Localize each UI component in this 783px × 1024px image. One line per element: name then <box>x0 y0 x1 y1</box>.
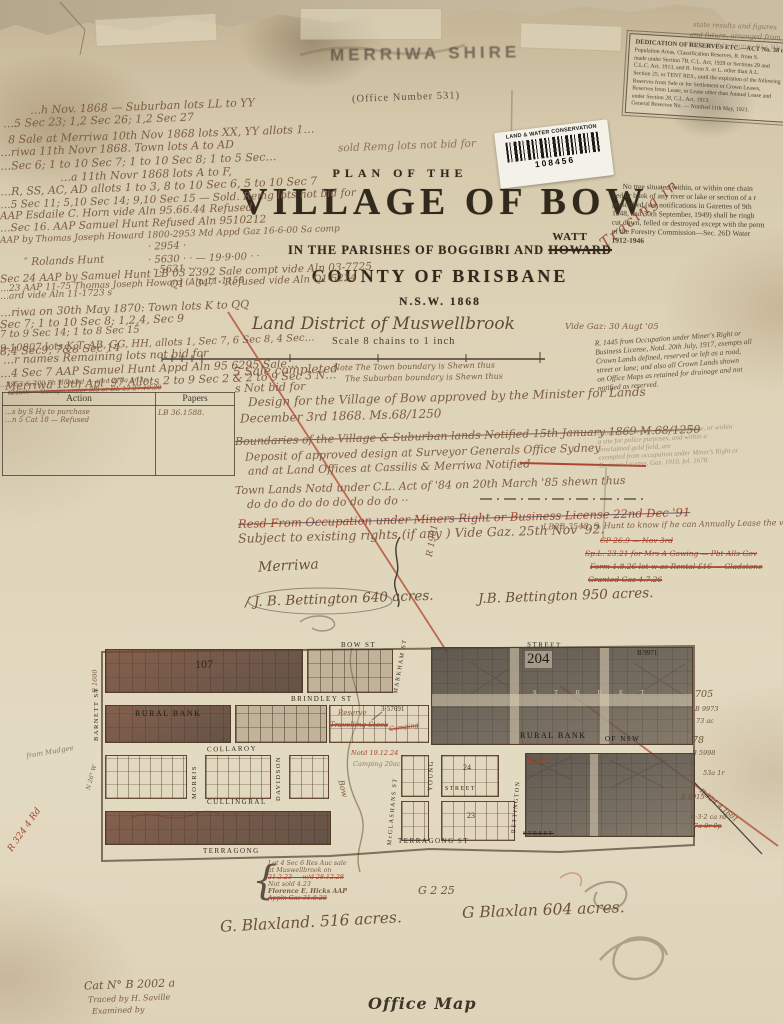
not-bid-note: s Not bid for <box>235 380 306 395</box>
register-note: · 2954 · <box>148 240 187 252</box>
g225-note: G 2 25 <box>418 884 455 897</box>
bradley-signature: W. J. Bradley <box>125 727 176 736</box>
margin-area-632: 6·3·2 ca rd <box>691 813 726 821</box>
street-label-young: YOUNG <box>427 760 435 791</box>
margin-portion-78: 78 <box>692 735 704 746</box>
camping-res-note: Camping 20ac <box>353 760 400 768</box>
hicks-note-line: Florence E. Hicks AAP <box>268 888 347 895</box>
street-label-mcglashans: McGLASHANS ST <box>387 777 399 845</box>
lot-number-24: 24 <box>463 763 471 772</box>
rural-bank-stamp: RURAL BANK <box>135 709 201 718</box>
dedication-notice-box: DEDICATION OF RESERVES ETC.—ACT No. 38 o… <box>625 33 783 123</box>
notd-date-note: Notd 19.12.24 <box>351 749 398 757</box>
table-cell-papers: LB 36.1588. <box>156 406 235 476</box>
r1600-road-label: R 1600 <box>91 669 99 693</box>
parishes-prefix: IN THE PARISHES OF BOGGIBRI AND <box>288 243 544 257</box>
section-number-204: 204 <box>525 651 552 668</box>
portion-b9971: B 9971 <box>637 649 657 657</box>
struck-note-form: Form 1.8.26 lot w as Rental £16 — Gladst… <box>590 562 763 571</box>
map-block <box>401 755 429 797</box>
table-header-action: Action <box>3 393 156 406</box>
register-table: Action Papers …s by S Hy to purchase …n … <box>2 392 235 476</box>
map-block <box>105 811 331 845</box>
street-label-bettington: BETTINGTON <box>511 780 522 833</box>
parish-watt: WATT <box>552 231 588 243</box>
street-label-davidson: DAVIDSON <box>275 756 282 801</box>
street-label-markham: MARKHAM ST <box>393 638 409 694</box>
action-papers-table: Action Papers …s by S Hy to purchase …n … <box>2 392 235 476</box>
plan-of-the: PLAN OF THE <box>300 166 500 181</box>
street-label-morris: MORRIS <box>191 765 198 799</box>
village-map: BOW ST STREET BRINDLEY ST COLLAROY CULLI… <box>95 641 723 879</box>
street-label-top: STREET <box>527 640 562 649</box>
street-label-brindley: BRINDLEY ST <box>291 695 353 703</box>
street-label-mid: STREET <box>445 786 476 792</box>
parish-struck-howard: HOWARD <box>548 243 612 257</box>
internal-street-strip <box>590 754 598 836</box>
map-block <box>441 801 515 841</box>
map-block <box>307 649 393 693</box>
street-label-terragong-st: TERRAGONG ST <box>398 837 469 845</box>
margin-b9973: B 9973 <box>695 705 718 713</box>
struck-note-cp: CP 26.9 — Nov 3rd <box>600 536 673 545</box>
hicks-note-line: Appln Gaz 31.8.28 <box>268 895 347 902</box>
struck-note-granted: Granted Gaz 4.7.26 <box>588 575 662 584</box>
merriwa-label: Merriwa <box>258 556 320 575</box>
street-label-cullingral: CULLINGRAL <box>207 798 267 806</box>
papers-note: LB 36.1588. <box>158 408 232 417</box>
internal-street-strip <box>510 648 519 744</box>
map-block <box>235 705 327 743</box>
street-label-bow: BOW ST <box>341 641 376 649</box>
rural-bank-stamp-2: RURAL BANK <box>520 731 586 740</box>
office-map-label: Office Map <box>368 994 477 1013</box>
land-district: Land District of Muswellbrook <box>252 314 515 334</box>
street-label-spread: S T R E E T <box>533 689 653 696</box>
examined-by-note: Examined by <box>92 1005 145 1016</box>
map-block <box>525 753 695 837</box>
street-label-terragong: TERRAGONG <box>203 847 260 855</box>
map-block <box>205 755 271 799</box>
district-gazette-note: Vide Gaz: 30 Augt '05 <box>565 322 659 332</box>
street-label-collaroy: COLLAROY <box>207 745 257 754</box>
state-year: N.S.W. 1868 <box>350 296 530 308</box>
parishes-line: IN THE PARISHES OF BOGGIBRI AND HOWARD W… <box>250 243 650 258</box>
pt-ocp-note: Pt OCP <box>527 757 551 765</box>
pencil-scribble-2 <box>600 937 667 978</box>
margin-portion-705: 705 <box>695 689 713 700</box>
section-number-107: 107 <box>195 657 213 672</box>
table-cell-action: …s by S Hy to purchase …n 5 Cat 18 — Ref… <box>3 406 156 476</box>
action-note-line: …s by S Hy to purchase <box>5 408 153 416</box>
scale-label: Scale 8 chains to 1 inch <box>332 336 455 347</box>
street-label-barnett: BARNETT ST <box>93 687 100 741</box>
margin-area-7a: 7a 0r 0p <box>694 822 722 830</box>
hicks-note-line: Not sold 4.23 <box>268 881 347 888</box>
parish-corrected: HOWARD WATT <box>548 243 612 258</box>
reserve-label: Reserve <box>338 709 367 717</box>
margin-73ac: 73 ac <box>696 717 714 725</box>
margin-b5998: B 5998 <box>692 749 715 757</box>
lot-number-23: 23 <box>467 811 475 820</box>
measurement-label: 3·57691 <box>381 705 404 713</box>
internal-street-strip <box>600 648 609 744</box>
tree-preservation-notice: No tree situated within, or within one c… <box>611 182 782 248</box>
pencil-loop-1 <box>300 616 335 631</box>
bow-creek-label: Bow <box>336 779 349 798</box>
action-note-line: …n 5 Cat 18 — Refused <box>5 416 153 424</box>
table-header-papers: Papers <box>156 393 235 406</box>
margin-53a1r: 53a 1r <box>703 769 724 777</box>
map-block <box>401 801 429 841</box>
struck-note-spl: Sp.L. 23.21 for Mrs A Gowing — Pbt Alls … <box>585 549 757 558</box>
photo-of-map: MERRIWA SHIRE (Office Number 531) Tracin… <box>0 0 783 1024</box>
travelling-stock-label: Travelling Stock <box>330 721 388 729</box>
of-nsw-stamp: OF NSW <box>605 735 640 743</box>
wall-crack <box>60 2 85 55</box>
shire-stamp: MERRIWA SHIRE <box>330 42 521 65</box>
street-label-struck: STREET <box>523 831 554 837</box>
map-block <box>105 755 187 799</box>
map-block <box>289 755 329 799</box>
